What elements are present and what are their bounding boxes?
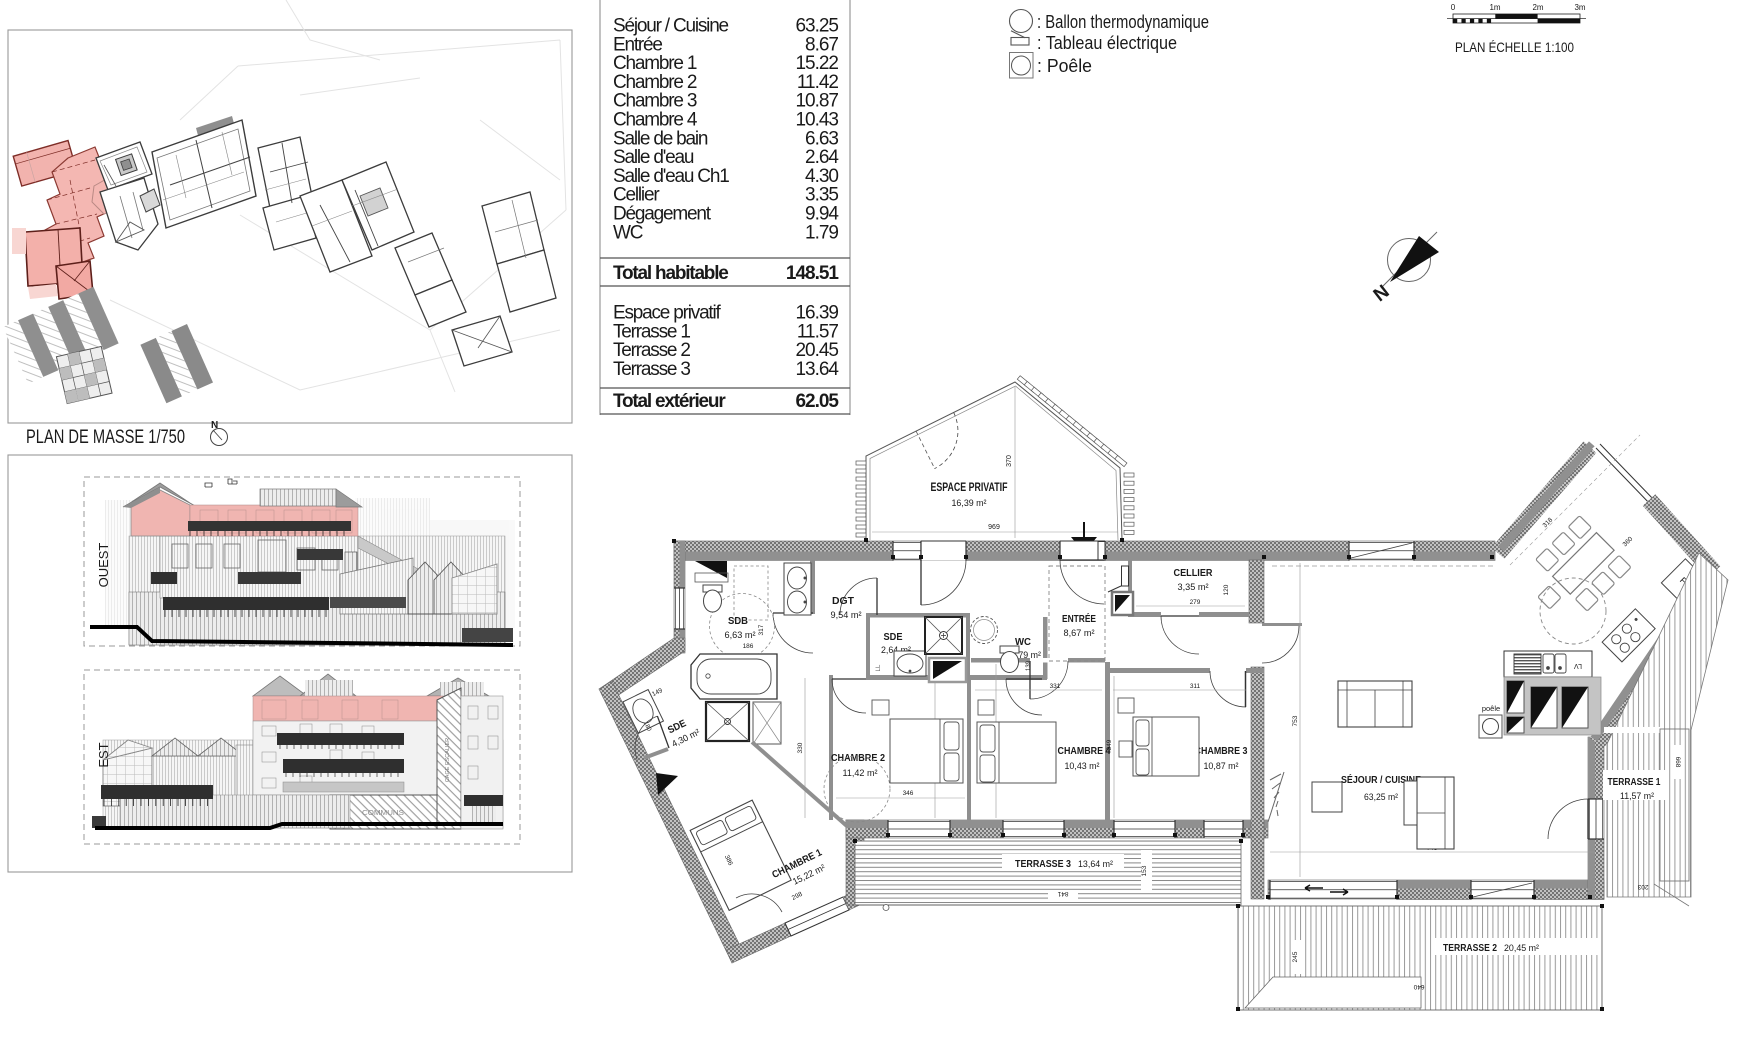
svg-text:3m: 3m: [1574, 3, 1585, 12]
svg-text:148.51: 148.51: [786, 263, 840, 284]
svg-text:139: 139: [1026, 660, 1032, 671]
svg-text:10,43 m²: 10,43 m²: [1065, 761, 1100, 771]
svg-text:TERRASSE 1: TERRASSE 1: [1608, 777, 1661, 788]
svg-text:CHAMBRE 3: CHAMBRE 3: [1195, 746, 1248, 757]
svg-text:120: 120: [1223, 584, 1230, 595]
svg-text:1.79: 1.79: [805, 222, 838, 243]
svg-text:1m: 1m: [1489, 3, 1500, 12]
svg-text:ENTRÉE: ENTRÉE: [1062, 612, 1096, 625]
svg-text:13.64: 13.64: [795, 359, 839, 380]
svg-text:DGT: DGT: [832, 596, 854, 607]
svg-text:SDE: SDE: [884, 632, 903, 643]
svg-text:203: 203: [1637, 883, 1648, 890]
svg-text:: Poêle: : Poêle: [1037, 55, 1092, 76]
svg-text:TERRASSE 2: TERRASSE 2: [1443, 943, 1497, 954]
svg-text:11,42 m²: 11,42 m²: [843, 768, 878, 778]
svg-text:13,64 m²: 13,64 m²: [1078, 859, 1113, 869]
svg-text:317: 317: [758, 624, 765, 635]
svg-text:245: 245: [1292, 951, 1299, 962]
svg-text:CHAMBRE 4: CHAMBRE 4: [1058, 746, 1111, 757]
svg-text:Terrasse 3: Terrasse 3: [613, 359, 690, 380]
svg-text:PLAN DE MASSE 1/750: PLAN DE MASSE 1/750: [26, 426, 185, 448]
svg-text:3,35 m²: 3,35 m²: [1178, 582, 1209, 592]
svg-text:EST: EST: [96, 742, 111, 767]
svg-text:COMMUNS: COMMUNS: [362, 808, 404, 817]
svg-text:668: 668: [1674, 757, 1681, 768]
svg-text:186: 186: [743, 643, 754, 650]
svg-text:9,54 m²: 9,54 m²: [831, 610, 862, 620]
svg-text:311: 311: [1190, 683, 1201, 690]
svg-text:331: 331: [1050, 683, 1061, 690]
svg-text:330: 330: [797, 742, 804, 753]
svg-text:OUEST: OUEST: [96, 543, 111, 588]
svg-text:153: 153: [1141, 865, 1148, 876]
svg-text:640: 640: [1413, 983, 1424, 990]
svg-text:349: 349: [1106, 739, 1113, 750]
svg-text:TERRASSE 3: TERRASSE 3: [1015, 859, 1071, 870]
svg-text:2m: 2m: [1532, 3, 1543, 12]
svg-text:: Ballon thermodynamique: : Ballon thermodynamique: [1037, 11, 1209, 32]
svg-text:346: 346: [903, 790, 914, 797]
svg-text:8,67 m²: 8,67 m²: [1064, 628, 1095, 638]
svg-text:0: 0: [1451, 3, 1456, 12]
svg-text:Total habitable: Total habitable: [613, 263, 728, 284]
svg-text:poêle: poêle: [1482, 704, 1500, 713]
svg-text:11,57 m²: 11,57 m²: [1620, 791, 1654, 801]
svg-text:20,45 m²: 20,45 m²: [1504, 943, 1539, 953]
svg-text:PLAN ÉCHELLE 1:100: PLAN ÉCHELLE 1:100: [1455, 39, 1574, 55]
svg-text:Total extérieur: Total extérieur: [613, 391, 726, 412]
svg-text:16,39 m²: 16,39 m²: [952, 498, 987, 508]
svg-text:969: 969: [988, 524, 1000, 531]
svg-text:ESPACE PRIVATIF: ESPACE PRIVATIF: [931, 482, 1008, 494]
svg-text:370: 370: [1006, 455, 1013, 467]
svg-text:LV: LV: [1574, 662, 1582, 669]
svg-text:753: 753: [1292, 715, 1299, 726]
svg-text:63,25 m²: 63,25 m²: [1364, 792, 1398, 802]
svg-text:WC: WC: [613, 222, 643, 243]
svg-text:CAGE ESCALIER: CAGE ESCALIER: [445, 738, 451, 782]
svg-text:CHAMBRE 2: CHAMBRE 2: [831, 753, 885, 764]
svg-text:841: 841: [1057, 890, 1068, 897]
svg-text:LL: LL: [876, 664, 882, 671]
svg-text:6,63 m²: 6,63 m²: [725, 630, 756, 640]
svg-text:62.05: 62.05: [795, 391, 839, 412]
svg-text:: Tableau électrique: : Tableau électrique: [1037, 32, 1177, 53]
svg-text:279: 279: [1190, 599, 1201, 606]
svg-text:CELLIER: CELLIER: [1174, 568, 1214, 579]
svg-text:N: N: [211, 420, 218, 431]
svg-text:SDB: SDB: [728, 616, 748, 627]
svg-text:10,87 m²: 10,87 m²: [1204, 761, 1239, 771]
